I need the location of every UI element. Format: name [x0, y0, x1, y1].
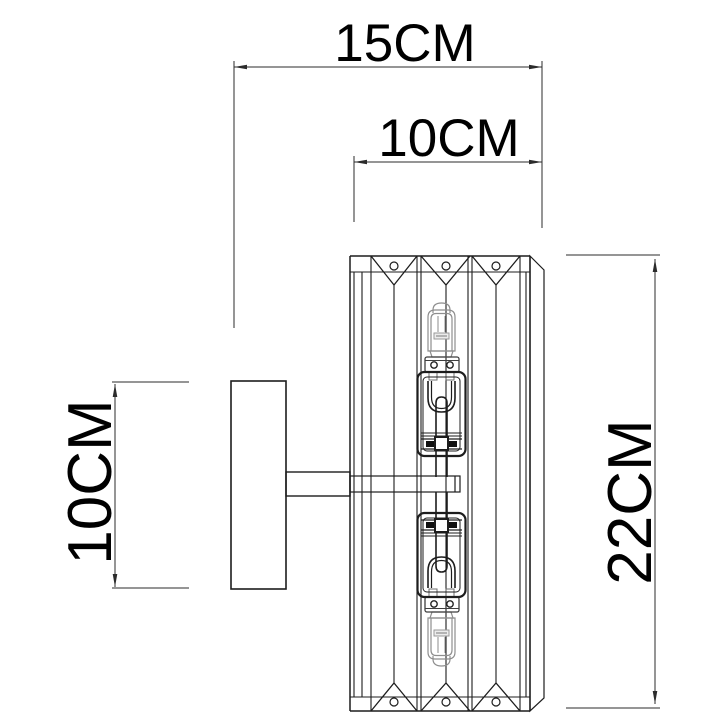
side-face — [530, 256, 544, 711]
dim-label-backplate-height: 10CM — [56, 399, 125, 564]
upper-bulb-assembly — [418, 303, 466, 477]
dim-label-body-width: 10CM — [378, 109, 519, 168]
dim-label-body-height: 22CM — [596, 419, 665, 584]
mounting-arm — [286, 472, 350, 496]
crystal-prism-lines — [354, 256, 526, 711]
technical-drawing-canvas: 15CM 10CM 10CM 22CM — [0, 0, 715, 715]
sconce-dimension-drawing: 15CM 10CM 10CM 22CM — [0, 0, 715, 715]
sconce-body — [350, 256, 544, 711]
wall-backplate — [231, 381, 286, 589]
mounting-arm-inner-bar — [350, 476, 460, 492]
dim-label-overall-projection: 15CM — [334, 14, 475, 73]
lower-bulb-assembly — [418, 492, 466, 666]
